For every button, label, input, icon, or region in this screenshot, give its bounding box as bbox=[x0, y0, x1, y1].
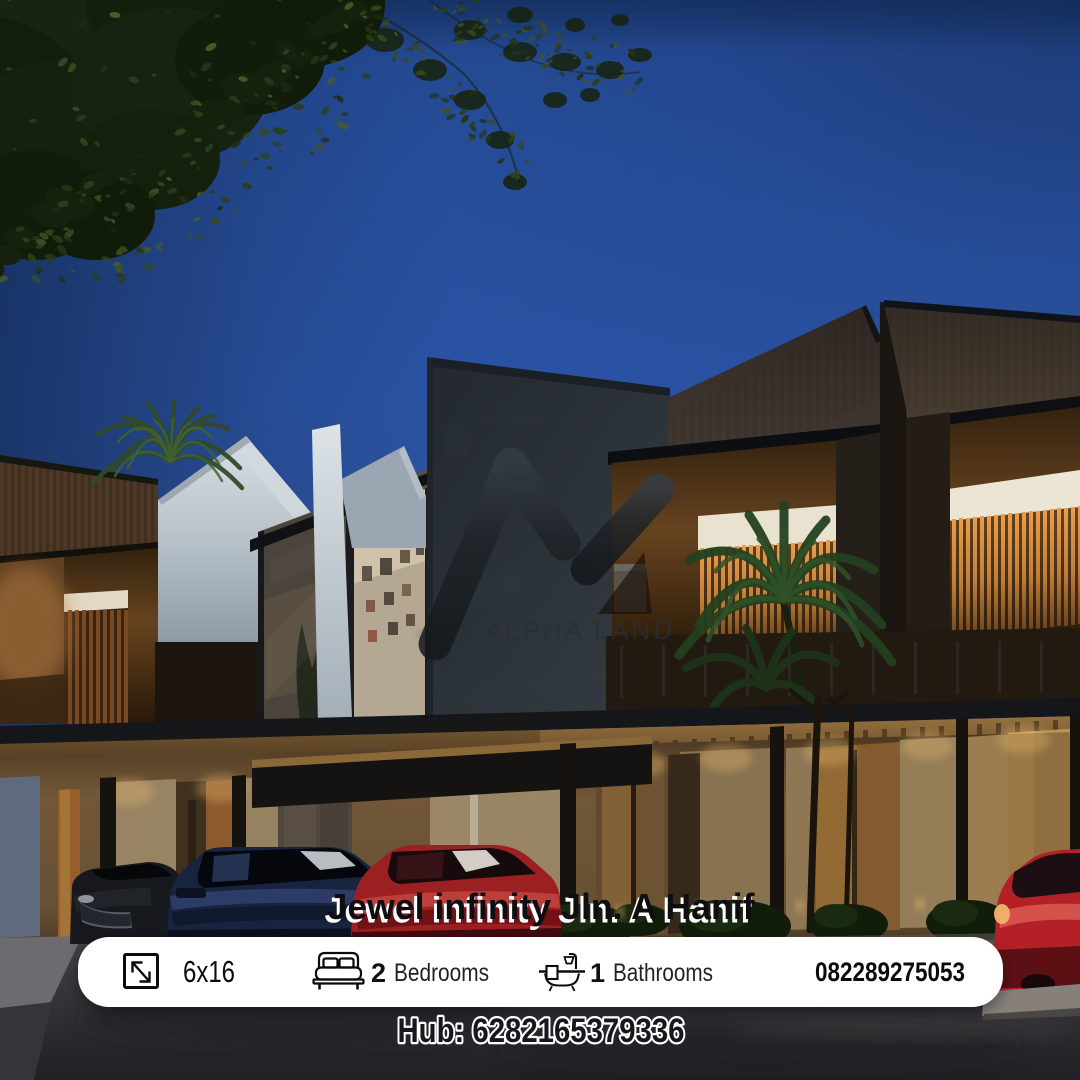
svg-text:Bedrooms: Bedrooms bbox=[394, 959, 489, 987]
svg-text:ALPHA LAND: ALPHA LAND bbox=[485, 615, 675, 645]
svg-text:6x16: 6x16 bbox=[183, 954, 235, 989]
svg-text:1: 1 bbox=[590, 958, 605, 988]
svg-text:082289275053: 082289275053 bbox=[815, 957, 965, 987]
svg-text:Hub: 6282165379336: Hub: 6282165379336 bbox=[398, 1012, 685, 1050]
svg-text:2: 2 bbox=[371, 958, 386, 988]
svg-text:Bathrooms: Bathrooms bbox=[613, 959, 713, 987]
svg-text:Jewel infinity Jln. A Hanif: Jewel infinity Jln. A Hanif bbox=[328, 886, 756, 927]
